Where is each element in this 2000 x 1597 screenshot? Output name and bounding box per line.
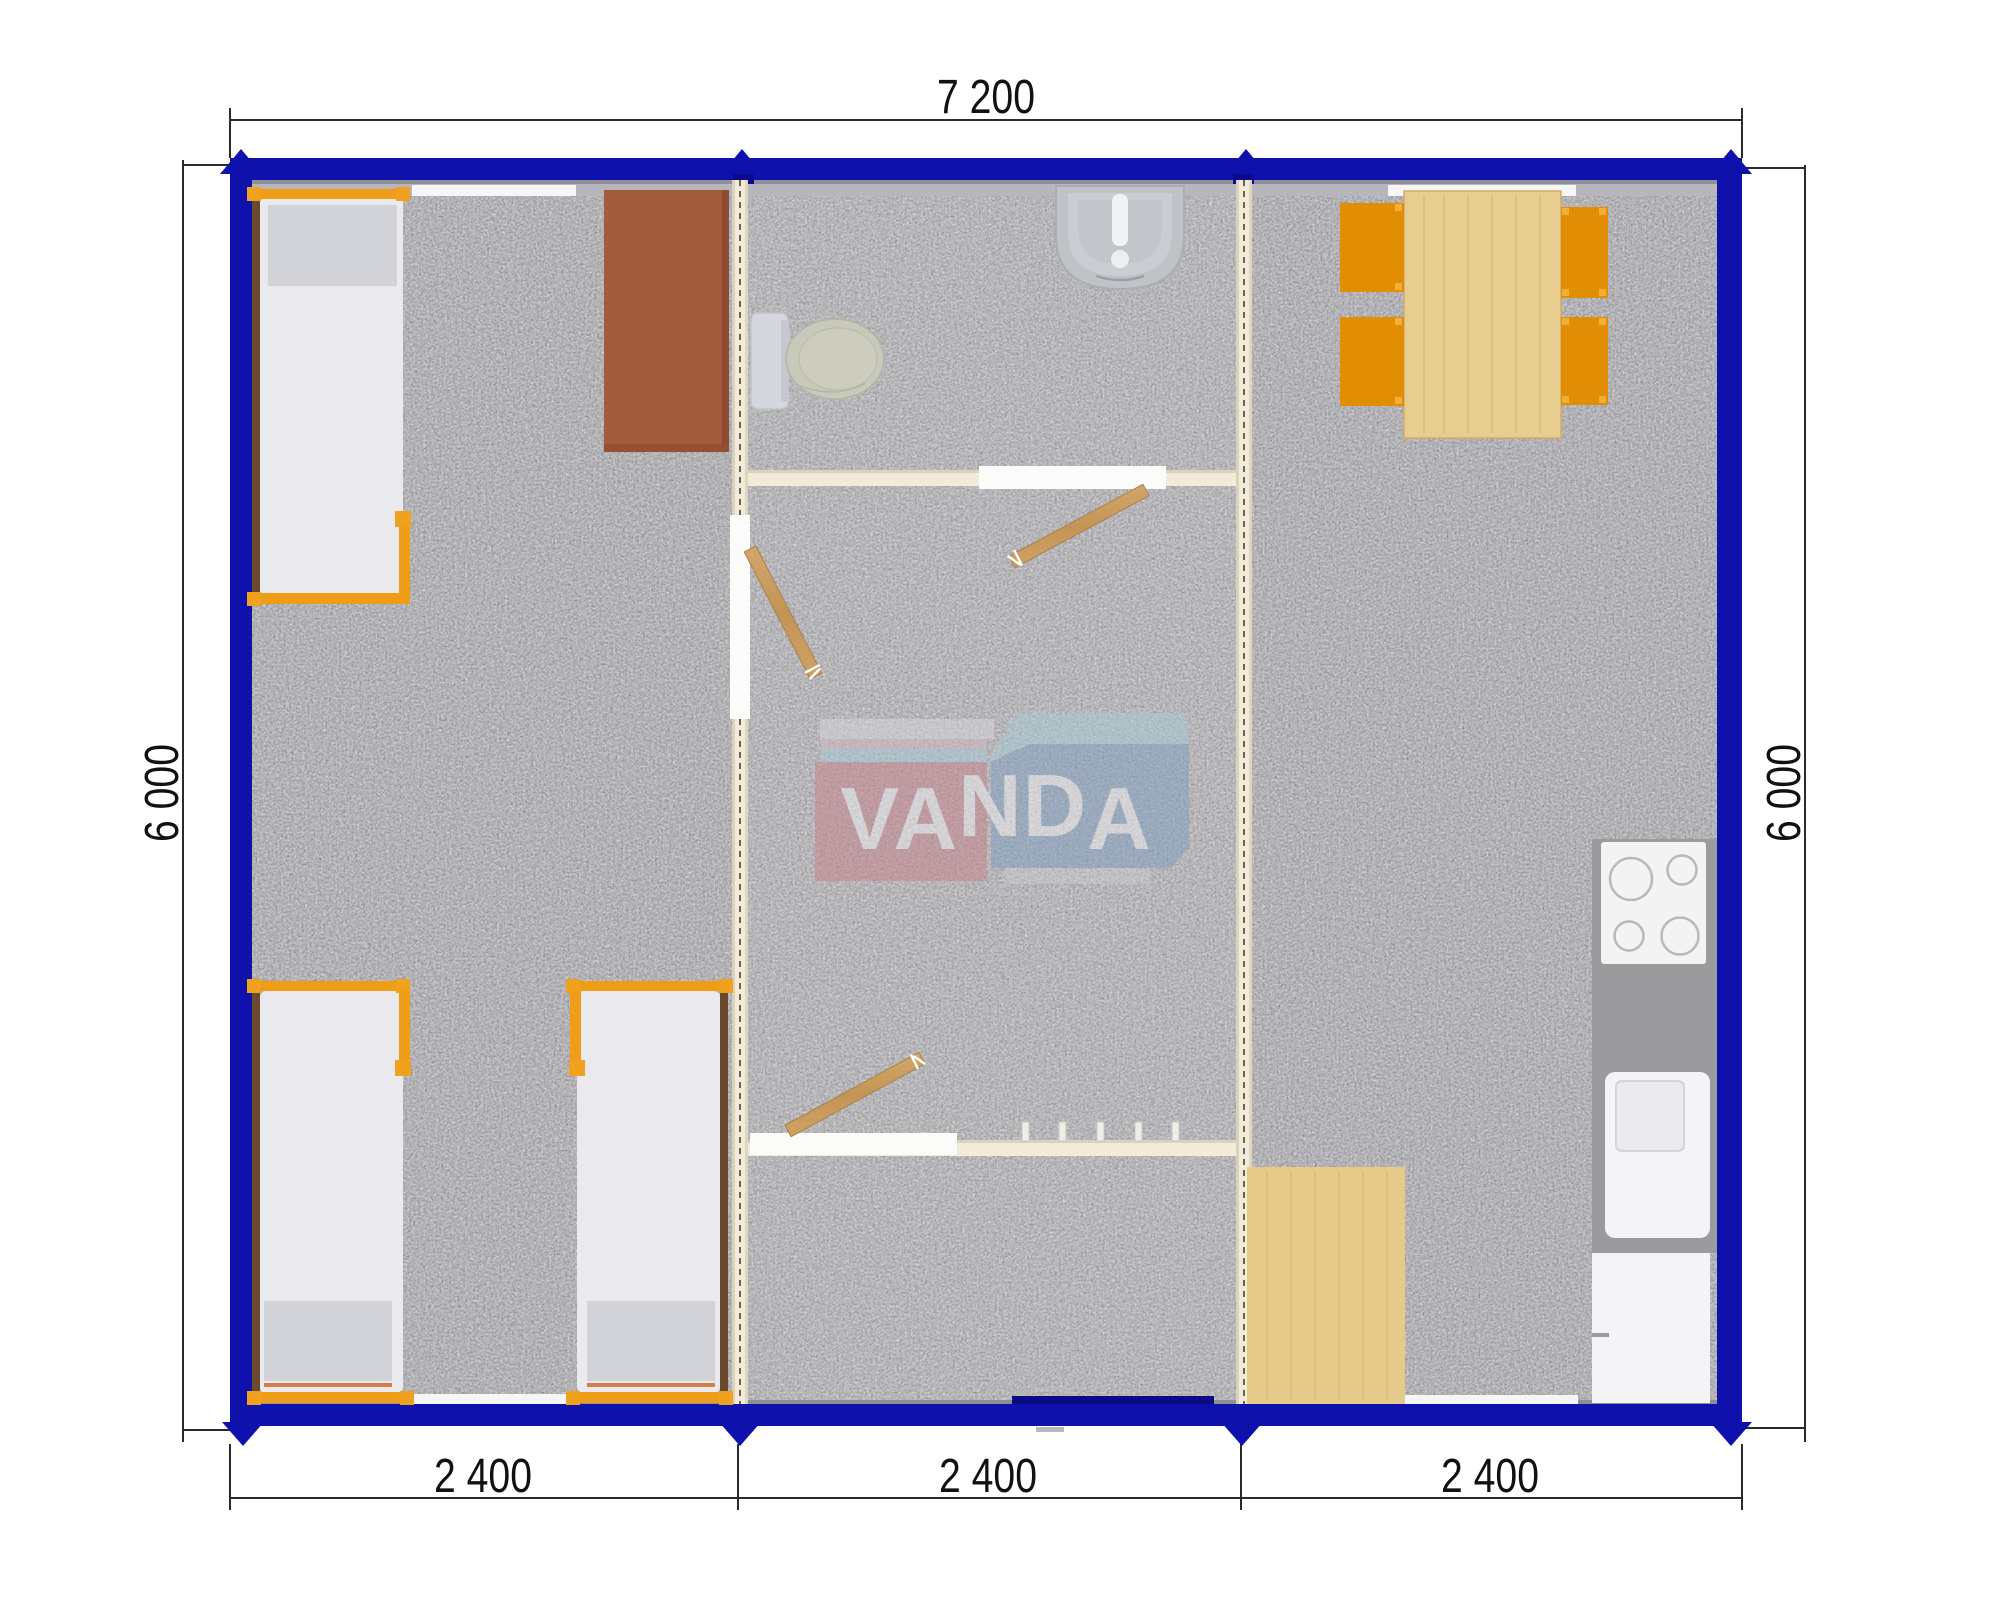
svg-text:7 200: 7 200: [937, 71, 1035, 124]
svg-text:2 400: 2 400: [434, 1450, 532, 1503]
svg-text:2 400: 2 400: [1441, 1450, 1539, 1503]
svg-text:VANDA: VANDA: [840, 756, 1151, 868]
svg-text:6 000: 6 000: [136, 744, 189, 842]
svg-text:6 000: 6 000: [1758, 744, 1811, 842]
svg-text:2 400: 2 400: [939, 1450, 1037, 1503]
